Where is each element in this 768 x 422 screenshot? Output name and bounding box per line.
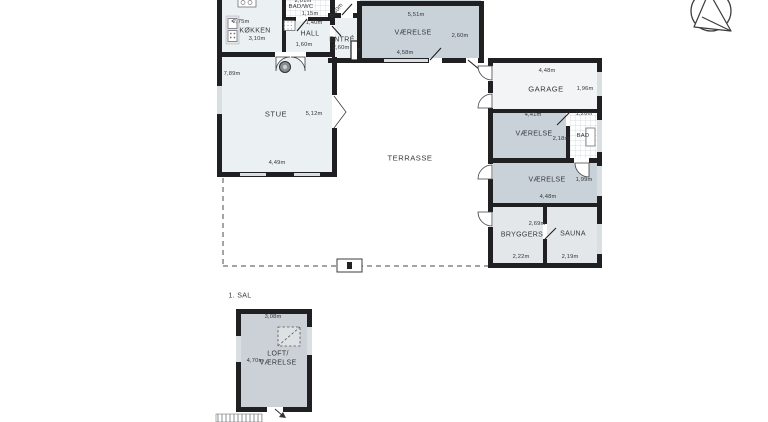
- skylight-icon: [278, 327, 300, 346]
- ground-floor-plan: [217, 0, 602, 272]
- dishwasher-icon: [228, 31, 237, 42]
- main-house-left-wing: [217, 0, 364, 177]
- garage-wing: [478, 58, 602, 268]
- window-sauna-east: [597, 224, 602, 254]
- window-stue-south-2: [294, 173, 320, 176]
- window-garage-east: [597, 72, 602, 96]
- room-vaerelse-north-floor: [360, 0, 481, 59]
- vaerelse-door-swing: [478, 165, 492, 179]
- terrace-french-door: [334, 96, 346, 128]
- window-loft-east: [307, 327, 312, 355]
- room-vaerelse-mid-floor: [493, 111, 568, 160]
- room-stue-floor: [221, 55, 337, 175]
- floor-plan-page: 2,01mBAD/WC1,15m1,40m2,75mKØKKEN3,10mHAL…: [0, 0, 768, 422]
- floor-plan-drawing: [0, 0, 768, 422]
- terrace-boundary: [223, 178, 488, 272]
- first-floor-plan: [216, 309, 312, 422]
- room-sauna-floor: [547, 205, 597, 265]
- window-vaerelse-north: [384, 59, 428, 62]
- garage-door-1-swing: [478, 66, 492, 80]
- wood-stove-icon: [280, 62, 291, 73]
- window-stue-south-1: [240, 173, 266, 176]
- bryggers-door-swing: [478, 212, 492, 226]
- bathroom-fixture: [586, 128, 595, 146]
- window-vaerelse-east: [597, 166, 602, 196]
- window-west: [217, 86, 222, 114]
- window-loft-west: [236, 336, 241, 362]
- cooktop-icon: [238, 0, 256, 7]
- terrace-marker-post: [347, 262, 352, 269]
- bedroom-wing-north: [357, 0, 484, 70]
- north-arrow-icon: [691, 0, 731, 31]
- kitchen-counter: [226, 16, 239, 44]
- shower-drain-icon: [284, 21, 295, 31]
- room-garage-floor: [491, 63, 599, 111]
- room-bryggers-floor: [493, 205, 543, 265]
- window-bad-east: [597, 120, 602, 152]
- ladder-hatch-icon: [216, 414, 262, 422]
- garage-door-2-swing: [478, 94, 492, 108]
